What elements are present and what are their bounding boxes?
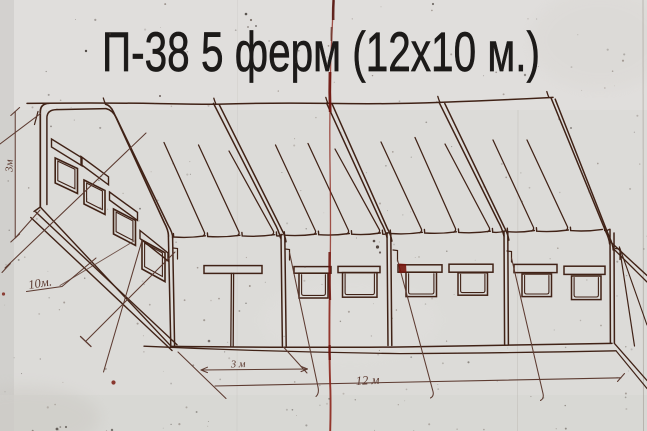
svg-text:3 м: 3 м (230, 359, 246, 371)
svg-text:12 м: 12 м (355, 373, 379, 388)
svg-text:3м: 3м (4, 159, 16, 173)
svg-text:П-38 5 ферм (12х10 м.): П-38 5 ферм (12х10 м.) (102, 20, 540, 83)
